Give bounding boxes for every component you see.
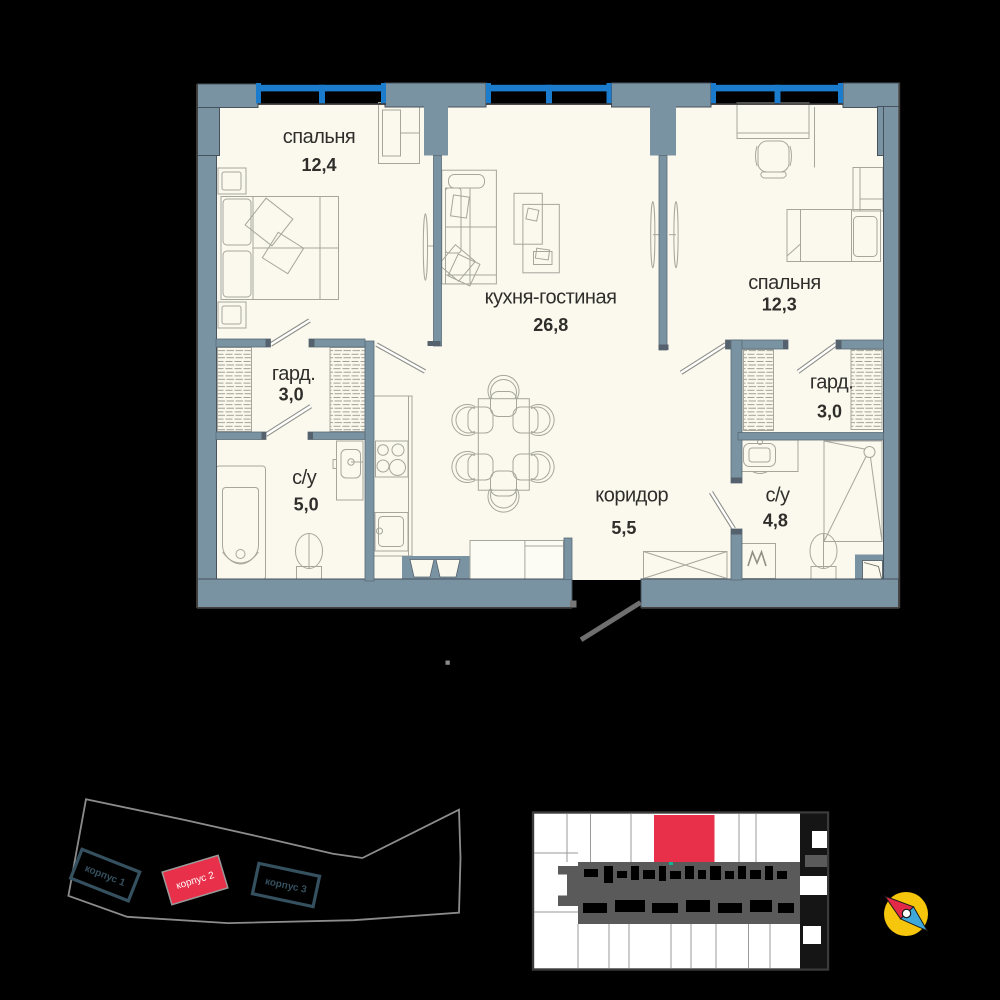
svg-text:5,0: 5,0 (294, 495, 319, 515)
svg-text:12,4: 12,4 (301, 155, 336, 175)
svg-text:спальня: спальня (748, 272, 820, 294)
svg-text:26,8: 26,8 (533, 315, 568, 335)
svg-text:3,0: 3,0 (817, 402, 842, 422)
svg-text:с/у: с/у (765, 485, 790, 507)
svg-text:кухня-гостиная: кухня-гостиная (485, 287, 617, 309)
svg-text:спальня: спальня (283, 126, 355, 148)
svg-text:3,0: 3,0 (279, 385, 304, 405)
svg-text:коридор: коридор (595, 485, 668, 507)
svg-text:гард.: гард. (272, 363, 315, 385)
svg-text:с/у: с/у (292, 467, 317, 489)
svg-text:гард.: гард. (810, 372, 853, 394)
svg-text:12,3: 12,3 (762, 295, 797, 315)
svg-text:4,8: 4,8 (763, 511, 788, 531)
svg-text:5,5: 5,5 (611, 518, 636, 538)
